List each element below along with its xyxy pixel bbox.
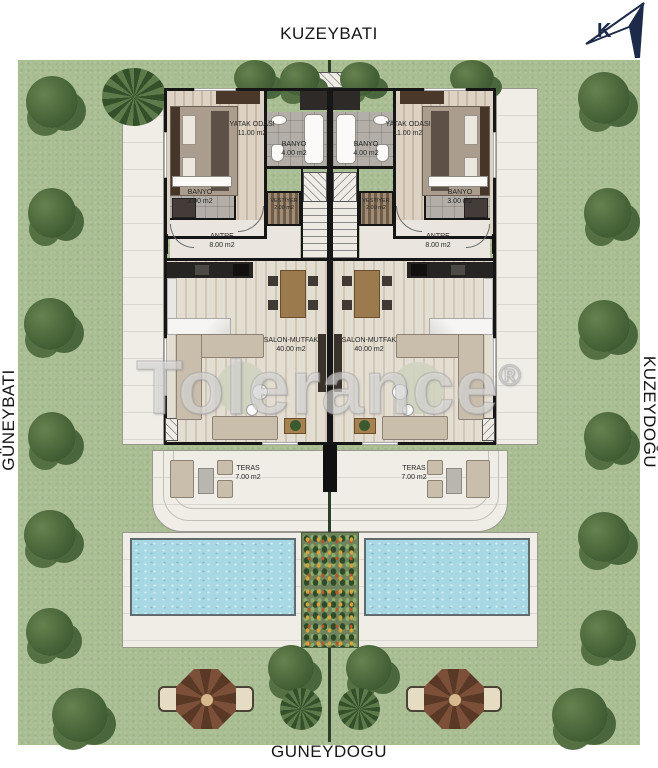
dining-chair — [308, 300, 318, 310]
fridge — [233, 264, 249, 276]
plant — [359, 420, 370, 431]
coffee-table — [392, 384, 408, 400]
room-label-bath-large: BANYO 4.00 m2 — [268, 140, 320, 158]
terrace-sofa — [466, 460, 490, 498]
room-label-bath-small: BANYO 3.00 m2 — [434, 188, 486, 206]
palm-plant — [338, 688, 380, 730]
tree — [580, 610, 628, 658]
window — [493, 132, 496, 178]
kitchen-island — [167, 318, 231, 335]
utility-closet — [300, 91, 327, 110]
tree — [52, 688, 108, 742]
dining-chair — [308, 276, 318, 286]
tree — [578, 512, 630, 562]
room-area: 11.00 m2 — [376, 129, 440, 138]
room-name: SALON-MUTFAK — [256, 336, 326, 345]
dining-chair — [382, 300, 392, 310]
fridge — [411, 264, 427, 276]
wardrobe — [216, 91, 260, 104]
direction-label-bottom: GÜNEYDOĞU — [271, 742, 387, 762]
window — [164, 338, 167, 396]
tree — [578, 300, 630, 352]
wall — [330, 88, 333, 445]
room-label-hall: ANTRE 8.00 m2 — [192, 232, 252, 250]
sofa — [458, 334, 484, 420]
tree — [24, 510, 76, 560]
room-area: 3.00 m2 — [434, 197, 486, 206]
wardrobe — [400, 91, 444, 104]
coffee-table — [402, 404, 414, 416]
room-name: VESTİYER — [260, 198, 308, 205]
site-plan-canvas: KUZEYBATI GÜNEYDOĞU GÜNEYBATI KUZEYDOĞU … — [0, 0, 658, 768]
palm-tree — [102, 68, 166, 126]
wall-pier — [165, 418, 178, 441]
tree — [28, 188, 76, 238]
room-area: 8.00 m2 — [192, 241, 252, 250]
dining-chair — [382, 276, 392, 286]
terrace-chair — [427, 480, 443, 498]
dining-chair — [268, 300, 278, 310]
terrace-door — [362, 442, 398, 445]
room-name: ANTRE — [408, 232, 468, 241]
pillow — [182, 115, 196, 145]
utility-closet — [333, 91, 360, 110]
room-name: YATAK ODASI — [376, 120, 440, 129]
lawn-area: TERAS 7.00 m2 TERAS 7.00 m2 — [18, 60, 640, 745]
wall — [164, 442, 330, 445]
direction-label-left: GÜNEYBATI — [0, 369, 19, 470]
kitchen-island — [429, 318, 493, 335]
room-name: VESTİYER — [352, 198, 400, 205]
room-name: BANYO — [434, 188, 486, 197]
room-area: 40.00 m2 — [256, 345, 326, 354]
window — [164, 132, 167, 178]
wall — [330, 442, 496, 445]
room-label-closet: VESTİYER 2.00 m2 — [352, 198, 400, 212]
compass-north-icon — [578, 0, 658, 58]
room-label-closet: VESTİYER 2.00 m2 — [260, 198, 308, 212]
wall — [424, 218, 490, 220]
wall — [170, 218, 236, 220]
room-name: TERAS — [224, 464, 272, 473]
dining-chair — [342, 276, 352, 286]
tree — [24, 298, 76, 350]
room-name: TERAS — [390, 464, 438, 473]
dining-table — [354, 270, 380, 318]
gazebo-roof — [176, 669, 236, 729]
window — [493, 338, 496, 396]
tree — [26, 608, 74, 656]
kitchen-counter-side — [167, 278, 177, 320]
flower-bed — [301, 532, 359, 648]
tree — [28, 412, 76, 462]
room-area: 40.00 m2 — [334, 345, 404, 354]
gazebo-roof — [424, 669, 484, 729]
room-label-terrace-right: TERAS 7.00 m2 — [390, 464, 438, 482]
villa-unit: YATAK ODASI 11.00 m2 BANYO 4.00 m2 BANYO… — [330, 88, 496, 445]
wall — [267, 166, 327, 169]
pool-right — [364, 538, 530, 616]
terrace-door — [262, 442, 298, 445]
plant — [290, 420, 301, 431]
bush — [346, 645, 392, 691]
entrance-door — [164, 234, 168, 254]
tree — [584, 412, 632, 462]
pool-left — [130, 538, 296, 616]
walkway-left — [122, 88, 164, 445]
room-name: BANYO — [268, 140, 320, 149]
coffee-table — [252, 384, 268, 400]
vanity-counter — [428, 176, 488, 187]
wall — [333, 166, 393, 169]
dining-chair — [342, 300, 352, 310]
terrace-table — [446, 468, 462, 494]
room-area: 7.00 m2 — [224, 473, 272, 482]
room-label-bath-small: BANYO 3.00 m2 — [174, 188, 226, 206]
room-area: 2.00 m2 — [260, 205, 308, 212]
room-label-bath-large: BANYO 4.00 m2 — [340, 140, 392, 158]
entrance-door — [492, 234, 496, 254]
coffee-table — [246, 404, 258, 416]
tree — [552, 688, 608, 742]
walkway-right — [496, 88, 538, 445]
tree — [578, 72, 630, 124]
room-label-hall: ANTRE 8.00 m2 — [408, 232, 468, 250]
pillow — [464, 115, 478, 145]
room-area: 4.00 m2 — [340, 149, 392, 158]
room-label-bedroom: YATAK ODASI 11.00 m2 — [220, 120, 284, 138]
compass-letter: K — [597, 20, 611, 43]
sofa — [382, 416, 448, 440]
vanity-counter — [172, 176, 232, 187]
tree — [26, 76, 78, 128]
room-area: 8.00 m2 — [408, 241, 468, 250]
kitchen-counter-side — [483, 278, 493, 320]
room-area: 4.00 m2 — [268, 149, 320, 158]
terrace-chair — [217, 480, 233, 498]
terrace-table — [198, 468, 214, 494]
room-name: BANYO — [340, 140, 392, 149]
room-label-living: SALON-MUTFAK 40.00 m2 — [256, 336, 326, 354]
dining-chair — [268, 276, 278, 286]
stove — [451, 265, 465, 275]
room-area: 2.00 m2 — [352, 205, 400, 212]
room-label-terrace-left: TERAS 7.00 m2 — [224, 464, 272, 482]
room-label-living: SALON-MUTFAK 40.00 m2 — [334, 336, 404, 354]
wall-pier — [482, 418, 495, 441]
palm-plant — [280, 688, 322, 730]
terrace-sofa — [170, 460, 194, 498]
stove — [195, 265, 209, 275]
kitchen-counter — [407, 262, 493, 278]
villa-unit: YATAK ODASI 11.00 m2 BANYO 4.00 m2 BANYO… — [164, 88, 330, 445]
room-label-bedroom: YATAK ODASI 11.00 m2 — [376, 120, 440, 138]
wall — [167, 258, 327, 261]
room-name: SALON-MUTFAK — [334, 336, 404, 345]
direction-label-top: KUZEYBATI — [280, 24, 378, 44]
tree — [584, 188, 632, 238]
room-area: 7.00 m2 — [390, 473, 438, 482]
dining-table — [280, 270, 306, 318]
kitchen-counter — [167, 262, 253, 278]
room-area: 11.00 m2 — [220, 129, 284, 138]
room-area: 3.00 m2 — [174, 197, 226, 206]
direction-label-right: KUZEYDOĞU — [639, 356, 658, 468]
room-name: YATAK ODASI — [220, 120, 284, 129]
sofa — [176, 334, 202, 420]
bush — [268, 645, 314, 691]
sofa — [212, 416, 278, 440]
room-name: BANYO — [174, 188, 226, 197]
room-name: ANTRE — [192, 232, 252, 241]
terrace-divider-wall — [323, 445, 337, 492]
